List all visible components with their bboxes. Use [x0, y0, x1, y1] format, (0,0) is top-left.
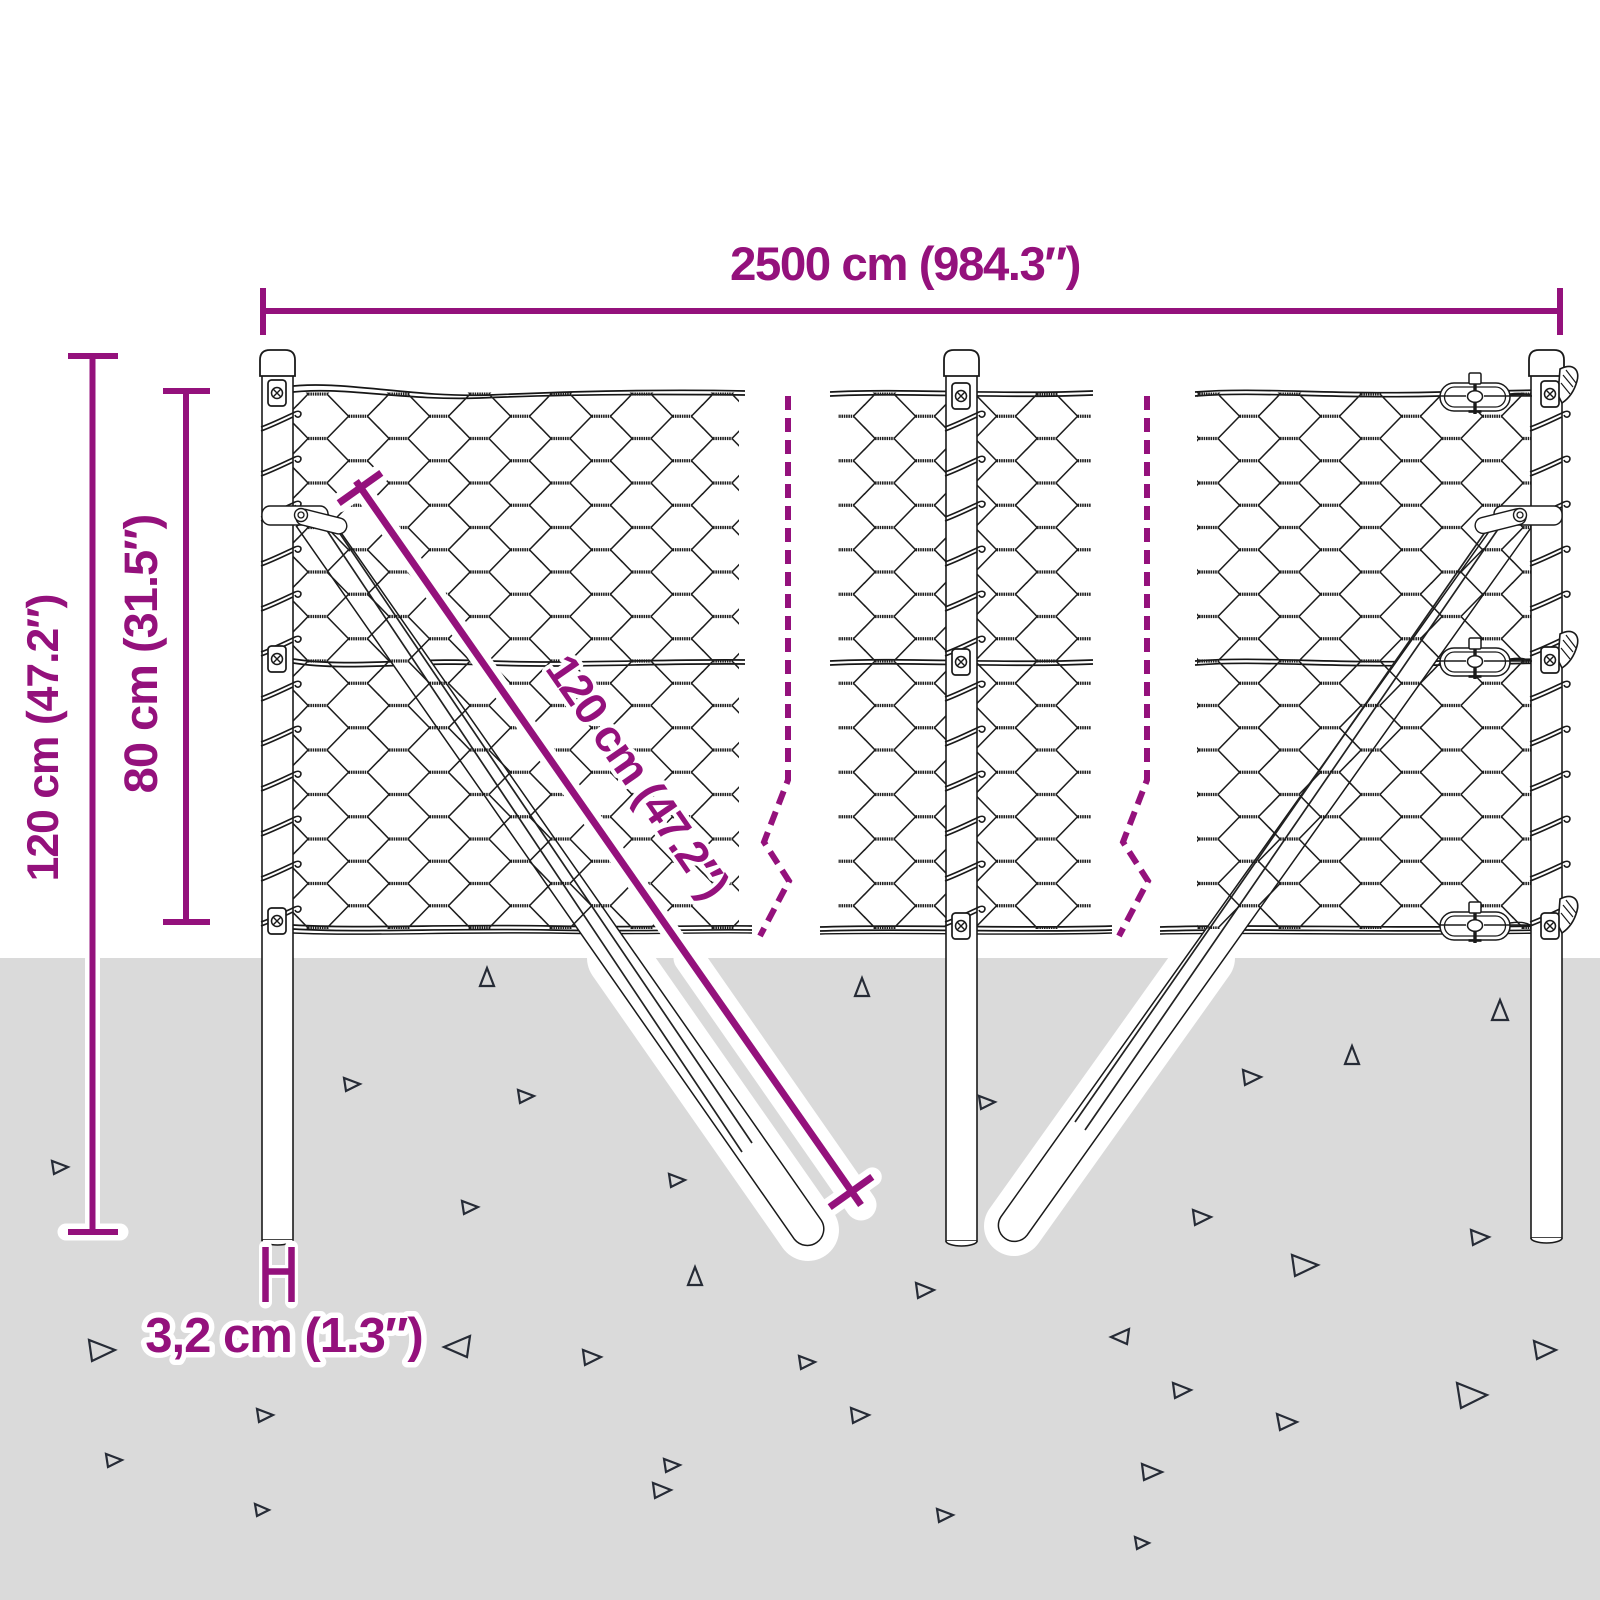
- svg-text:120 cm (47.2″): 120 cm (47.2″): [19, 595, 68, 882]
- svg-text:3,2 cm (1.3″): 3,2 cm (1.3″): [145, 1309, 422, 1363]
- svg-text:2500 cm (984.3″): 2500 cm (984.3″): [730, 238, 1080, 291]
- svg-text:80 cm (31.5″): 80 cm (31.5″): [114, 515, 167, 794]
